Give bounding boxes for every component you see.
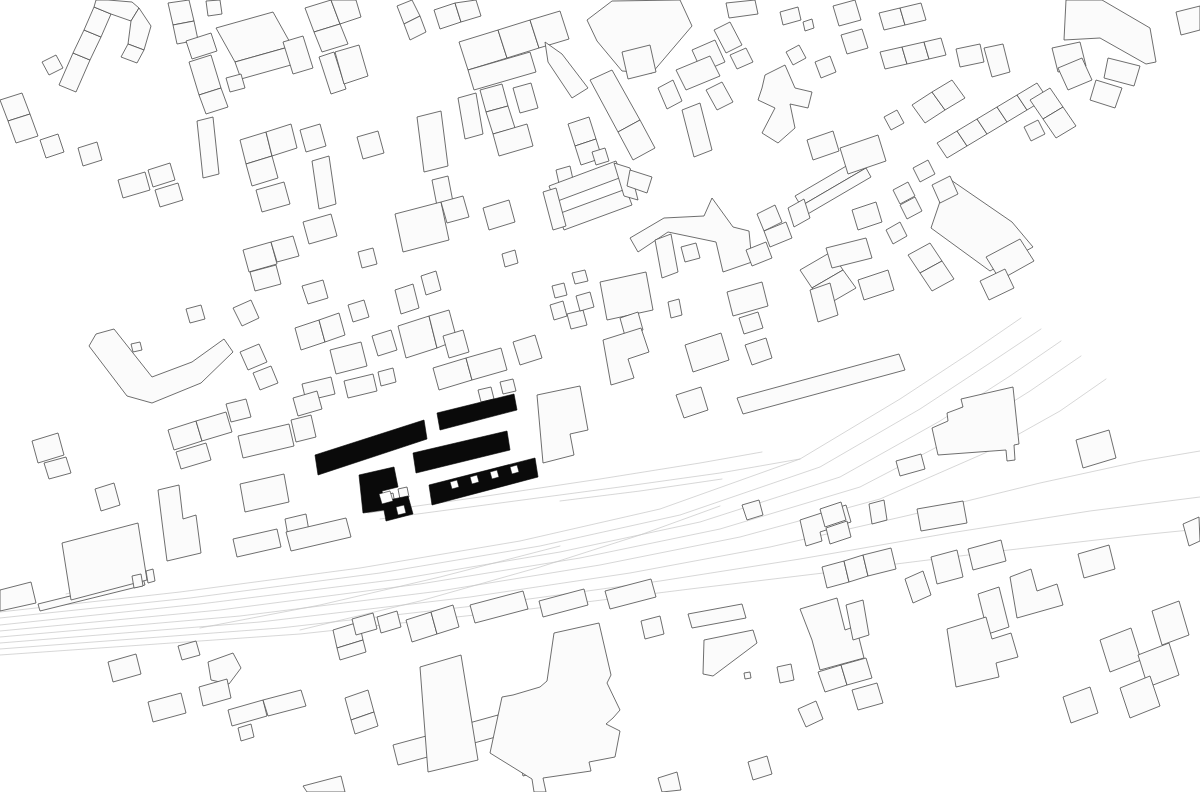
building-footprint [240,474,289,512]
site-buildings-layer [315,394,538,521]
building-footprint [466,348,507,380]
building-footprint [1152,601,1189,645]
building-footprint [605,579,656,609]
building-footprint [148,163,175,187]
building-footprint [1176,6,1200,35]
building-footprint [240,344,267,370]
building-footprint [852,683,883,710]
site-building [413,431,510,473]
building-footprint [513,83,538,113]
building-footprint [744,672,751,679]
building-footprint [539,589,588,617]
building-footprint [233,529,281,557]
building-footprint [1024,120,1045,141]
building-footprint [378,368,396,386]
building-footprint [685,333,729,372]
building-footprint [727,282,768,316]
building-footprint [293,391,322,416]
building-footprint [1063,687,1098,723]
building-footprint [807,131,839,160]
building-footprint [168,0,194,25]
building-footprint [676,387,708,418]
building-footprint [703,630,757,676]
building-footprint [206,0,222,16]
building-footprint [658,772,681,792]
site-building [315,420,427,475]
building-footprint [502,250,518,267]
building-footprint [42,55,63,75]
building-footprint [786,45,806,65]
building-footprint [932,387,1019,461]
building-footprint [78,142,102,166]
building-footprint [500,379,516,394]
figure-ground-site-plan [0,0,1200,792]
building-footprint [1010,569,1063,618]
building-footprint [148,693,186,722]
building-footprint [226,74,245,92]
building-footprint [706,82,733,110]
building-footprint [668,299,682,318]
building-footprint [886,222,907,244]
building-footprint [826,238,872,268]
building-footprint [1100,628,1141,672]
building-footprint [95,483,120,511]
building-footprint [900,3,926,25]
building-footprint [777,664,794,683]
building-footprint [780,7,801,25]
building-footprint [377,611,401,633]
building-footprint [233,300,259,326]
building-footprint [421,271,441,295]
building-footprint [655,234,678,278]
building-footprint [348,300,369,322]
building-footprint [603,328,649,385]
building-footprint [433,358,472,390]
site-plan-page [0,0,1200,792]
building-footprint [266,124,297,156]
building-footprint [852,202,882,230]
building-footprint [748,756,772,780]
building-footprint [226,399,251,422]
building-footprint [0,582,36,611]
building-footprint [146,569,155,583]
building-footprint [59,53,90,92]
building-footprint [905,571,931,603]
building-footprint [1183,517,1200,546]
building-footprint [132,574,143,588]
building-footprint [62,523,147,600]
building-footprint [458,93,483,139]
building-footprint [358,248,377,268]
building-footprint [630,198,752,272]
building-footprint [572,270,588,284]
building-footprint [196,412,232,441]
building-footprint [803,19,814,31]
building-footprint [682,103,712,157]
building-footprint [968,540,1006,570]
building-footprint [291,415,316,442]
building-footprint [189,55,221,95]
building-footprint [118,172,150,198]
building-footprint [228,700,267,726]
building-footprint [739,312,763,334]
building-footprint [726,0,758,18]
building-footprint [552,283,567,298]
building-footprint [917,501,967,531]
building-footprint [896,454,925,476]
building-footprint [283,36,313,74]
building-footprint [863,548,896,576]
building-footprint [158,485,201,561]
building-footprint [833,0,861,26]
site-courtyard [396,505,406,515]
building-footprint [840,135,886,174]
building-footprint [1104,58,1140,86]
building-footprint [658,80,682,109]
building-footprint [641,616,664,639]
building-footprint [590,70,640,132]
building-footprint [513,335,542,365]
building-footprint [420,655,478,772]
railway-line [560,479,722,501]
building-footprint [155,183,183,207]
building-footprint [913,160,935,182]
building-footprint [745,338,772,365]
site-building [437,394,517,430]
building-footprint [395,284,419,314]
building-footprint [253,366,278,390]
building-footprint [737,354,905,414]
building-footprint [798,701,823,727]
building-footprint [303,214,337,244]
building-footprint [858,270,894,300]
building-footprint [884,110,904,130]
building-footprint [681,243,700,262]
building-footprint [869,500,887,524]
building-footprint [131,342,142,352]
building-footprint [300,124,326,152]
building-footprint [256,182,290,212]
building-footprint [1090,80,1122,108]
building-footprint [567,310,587,329]
building-footprint [357,131,384,159]
building-footprint [108,654,141,682]
building-footprint [550,301,567,320]
building-footprint [1078,545,1115,578]
building-footprint [199,679,231,706]
building-footprints-layer [0,0,1200,792]
building-footprint [186,305,205,323]
building-footprint [984,44,1010,77]
building-footprint [312,156,336,209]
building-footprint [730,48,753,69]
building-footprint [600,272,653,320]
building-footprint [545,42,588,98]
building-footprint [40,134,64,158]
building-footprint [490,623,620,792]
building-footprint [330,342,367,374]
building-footprint [931,550,963,584]
building-footprint [178,641,200,660]
building-footprint [238,724,254,741]
building-footprint [576,292,594,311]
building-footprint [263,690,306,716]
building-footprint [238,424,294,458]
building-footprint [956,44,984,67]
building-footprint [1076,430,1116,468]
building-footprint [372,330,397,356]
building-footprint [395,202,449,252]
building-footprint [417,111,448,172]
building-footprint [197,117,219,178]
building-footprint [758,65,812,143]
building-footprint [537,386,588,463]
building-footprint [344,374,377,398]
building-footprint [302,280,328,304]
building-footprint [483,200,515,230]
building-footprint [89,329,233,403]
building-footprint [841,29,868,54]
building-footprint [688,604,746,628]
building-footprint [303,776,345,792]
building-footprint [815,56,836,78]
